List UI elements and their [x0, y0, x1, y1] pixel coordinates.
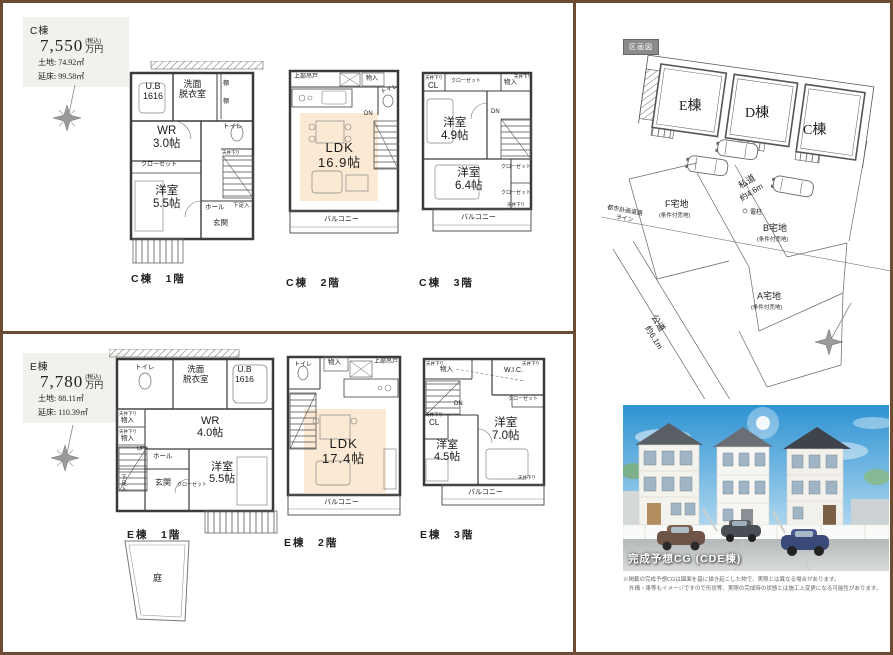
room-label-ceiling: 天井下り — [518, 475, 536, 480]
room-label-toilet: トイレ — [223, 123, 243, 130]
compass-icon — [815, 303, 851, 355]
room-label-hall: ホール — [205, 204, 225, 211]
room-label-storage: 物入 — [504, 79, 517, 86]
cg-disclaimer: ※掲載の完成予想CGは図面を基に描き起こした物で、実際とは異なる場合があります。… — [623, 576, 887, 594]
price-value: 7,780 — [40, 373, 83, 390]
room-label-storage: 物入 — [366, 76, 378, 83]
car-icon — [685, 155, 729, 177]
siteplan-building-e: E棟 — [679, 98, 702, 114]
room-label-closet: クローゼット — [141, 162, 177, 169]
room-label-ldk: LDK 16.9帖 — [318, 141, 361, 170]
cg-render: 完成予想CG (CDE棟) — [623, 405, 889, 571]
garden-area: 庭 — [115, 537, 205, 637]
floorplan-c-2f: 上部吊戸 物入 トイレ DN LDK 16.9帖 バルコニー — [282, 63, 406, 263]
gross-area: 延床: 99.58㎡ — [38, 71, 122, 82]
room-label-ub: U.B 1616 — [143, 81, 163, 101]
siteplan-building-c: C棟 — [803, 122, 826, 138]
garden-label: 庭 — [153, 573, 162, 583]
room-label-wr: WR 3.0帖 — [153, 125, 181, 151]
garden-drawing — [115, 537, 205, 637]
room-label-closet: クローゼット — [177, 483, 207, 489]
cg-disclaimer-line2: 外構・車等もイメージですので形状等、実際の完成時の状態とは施工上変更になる可能性… — [629, 585, 887, 594]
room-label-ldk: LDK 17.4帖 — [322, 437, 365, 466]
floorplan-e-3f: 天井下り 物入 W.I.C. 天井下り クローゼット DN 天井下り CL 洋室… — [416, 351, 552, 535]
plot-a-note: (条件付売地) — [751, 303, 782, 311]
utility-pole-label: 電柱 — [750, 208, 762, 216]
plot-a-label: A宅地 — [757, 290, 781, 301]
plan-caption-e3: E棟 3階 — [420, 527, 474, 542]
plan-caption-c2: C棟 2階 — [286, 275, 341, 290]
room-label-wic: W.I.C. — [504, 367, 523, 375]
compass-icon — [51, 423, 87, 479]
room-label-hall: ホール — [153, 453, 173, 460]
car-icon — [770, 175, 814, 198]
floorplan-e-2f: トイレ 物入 上部吊戸 LDK 17.4帖 バルコニー — [280, 349, 410, 541]
room-label-bedroom: 洋室 4.5帖 — [434, 439, 460, 464]
plot-f-note: (条件付売地) — [659, 211, 690, 219]
price-unit: 万円 — [85, 381, 103, 390]
room-label-balcony: バルコニー — [324, 499, 359, 507]
room-label-ceiling: 天井下り — [507, 202, 525, 207]
room-label-wr: WR 4.0帖 — [197, 415, 223, 440]
room-label-storage: 物入 — [328, 359, 341, 366]
room-label-washroom: 洗面 脱衣室 — [179, 79, 206, 99]
floorplan-e-1f: トイレ 洗面 脱衣室 U.B 1616 天井下り 物入 天井下り 物入 WR 4… — [109, 349, 281, 535]
planline-label: 都市計画道路 — [607, 203, 644, 217]
room-label-shelf: 棚 — [223, 99, 229, 106]
room-label-storage: 物入 — [440, 366, 453, 373]
plan-caption-c3: C棟 3階 — [419, 275, 474, 290]
room-label-cl: CL — [429, 419, 439, 428]
horizontal-divider — [3, 331, 573, 334]
room-label-balcony: バルコニー — [468, 489, 503, 497]
room-label-entry: 玄関 — [155, 479, 171, 488]
room-label-closet: クローゼット — [508, 397, 538, 403]
room-label-ceiling: 天井下り — [119, 429, 137, 434]
room-label-toilet: トイレ — [135, 364, 155, 371]
room-label-ceiling: 天井下り — [222, 150, 240, 155]
room-label-closet: クローゼット — [501, 165, 531, 171]
room-label-entry: 玄関 — [213, 219, 228, 227]
room-label-bedroom: 洋室 4.9帖 — [441, 117, 469, 143]
land-area: 土地: 74.92㎡ — [38, 57, 122, 68]
room-label-shelf: 棚 — [223, 81, 229, 88]
price-unit: 万円 — [85, 45, 103, 54]
compass-icon — [53, 83, 89, 139]
vertical-divider — [573, 3, 576, 652]
room-label-ceiling: 天井下り — [425, 75, 443, 80]
room-label-bedroom: 洋室 7.0帖 — [492, 417, 520, 443]
plan-caption-e2: E棟 2階 — [284, 535, 338, 550]
plot-f-label: F宅地 — [665, 198, 689, 209]
room-label-ceiling: 天井下り — [522, 361, 540, 366]
room-label-storage: 物入 — [121, 435, 134, 442]
floorplan-c-1f: U.B 1616 洗面 脱衣室 棚 棚 トイレ 天井下り WR 3.0帖 クロー… — [121, 61, 273, 271]
room-label-toilet: トイレ — [294, 362, 312, 369]
price-value: 7,550 — [40, 37, 83, 54]
room-label-closet: クローゼット — [451, 79, 481, 85]
room-label-ub: U.B 1616 — [235, 365, 254, 384]
plan-caption-c1: C棟 1階 — [131, 271, 186, 286]
room-label-ceiling: 天井下り — [119, 411, 137, 416]
room-label-cl: CL — [428, 82, 438, 91]
room-label-cupboard: 上部吊戸 — [374, 359, 398, 366]
room-label-bedroom: 洋室 6.4帖 — [455, 167, 483, 193]
room-label-storage: 物入 — [121, 417, 134, 424]
siteplan-building-d: D棟 — [745, 105, 769, 121]
room-label-ceiling: 天井下り — [425, 412, 443, 417]
price-card-c: C棟 7,550 (税込) 万円 土地: 74.92㎡ 延床: 99.58㎡ — [23, 17, 129, 87]
room-label-dn: DN — [491, 109, 500, 116]
room-label-balcony: バルコニー — [324, 216, 359, 224]
room-label-ceiling: 天井下り — [514, 74, 532, 79]
room-label-up: UP — [137, 446, 145, 452]
room-label-shoe: 下足入 — [119, 475, 129, 493]
room-label-bedroom: 洋室 5.5帖 — [209, 461, 235, 486]
room-label-shoe: 下足入 — [233, 203, 250, 209]
cg-caption: 完成予想CG (CDE棟) — [628, 551, 741, 566]
cg-disclaimer-line1: ※掲載の完成予想CGは図面を基に描き起こした物で、実際とは異なる場合があります。 — [623, 576, 887, 585]
room-label-dn: DN — [364, 111, 373, 118]
room-label-washroom: 洗面 脱衣室 — [183, 365, 209, 384]
site-plan: E棟 D棟 C棟 — [599, 31, 893, 399]
unit-name: C棟 — [30, 22, 122, 37]
room-label-closet: クローゼット — [501, 191, 531, 197]
room-label-cupboard: 上部吊戸 — [294, 74, 318, 81]
siteplan-drawing: E棟 D棟 C棟 — [599, 31, 893, 399]
room-label-dn: DN — [454, 401, 463, 408]
room-label-bedroom: 洋室 5.5帖 — [153, 185, 181, 211]
floorplan-c-3f: 天井下り CL クローゼット 物入 天井下り 洋室 4.9帖 DN 洋室 6.4… — [415, 63, 539, 263]
flyer-page: C棟 7,550 (税込) 万円 土地: 74.92㎡ 延床: 99.58㎡ — [0, 0, 893, 655]
floorplan-drawing — [415, 63, 539, 263]
cg-illustration — [623, 405, 889, 571]
plot-b-note: (条件付売地) — [757, 235, 788, 243]
room-label-balcony: バルコニー — [461, 214, 496, 222]
plot-b-label: B宅地 — [763, 222, 787, 233]
